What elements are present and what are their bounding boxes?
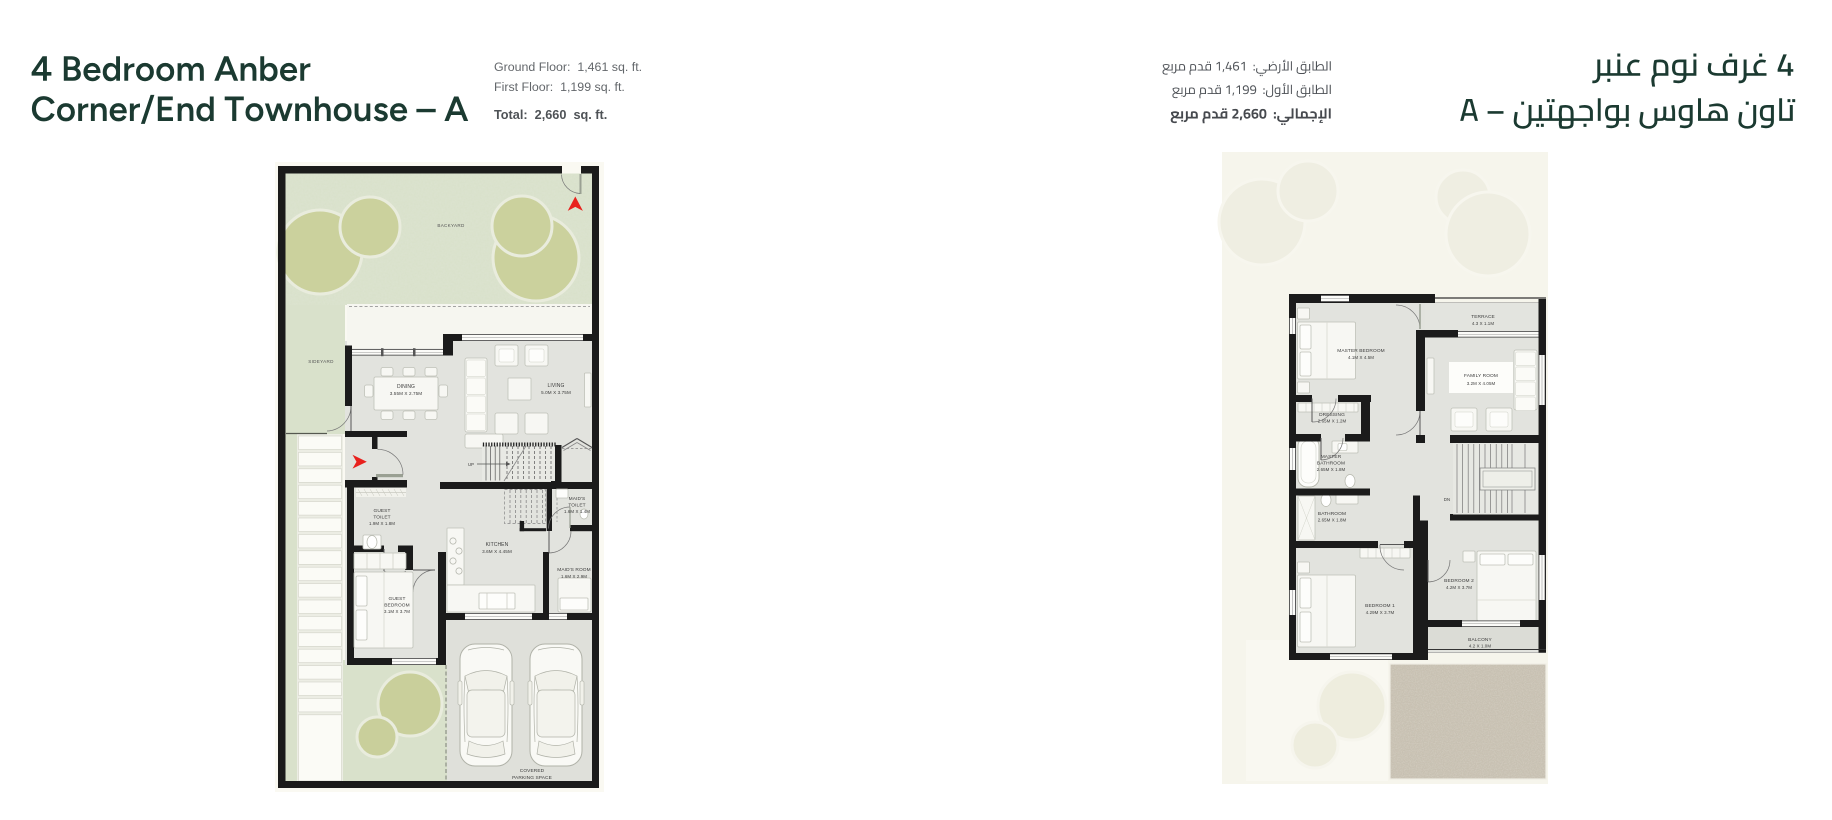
svg-text:1.6M X 1.4M: 1.6M X 1.4M [564,509,590,514]
svg-text:FAMILY ROOM: FAMILY ROOM [1464,373,1498,379]
svg-text:4.3 X 1.1M: 4.3 X 1.1M [1472,321,1494,326]
svg-text:TOILET: TOILET [373,515,390,521]
svg-text:BEDROOM 2: BEDROOM 2 [1444,578,1474,584]
svg-text:4.29M X 3.7M: 4.29M X 3.7M [1366,610,1395,615]
svg-text:2.65M X 1.8M: 2.65M X 1.8M [1317,467,1346,472]
svg-text:4.2M X 3.7M: 4.2M X 3.7M [1446,585,1472,590]
svg-text:Total: 2,660 sq. ft.: Total: 2,660 sq. ft. [494,108,607,122]
svg-text:MASTER: MASTER [1321,454,1342,460]
svg-text:Ground Floor: 1,461 sq. ft.: Ground Floor: 1,461 sq. ft. [494,60,642,74]
svg-text:UP: UP [468,462,474,467]
svg-text:4.2 X 1.0M: 4.2 X 1.0M [1469,644,1491,649]
svg-text:SIDEYARD: SIDEYARD [308,359,334,364]
svg-text:BATHROOM: BATHROOM [1318,511,1346,517]
svg-text:KITCHEN: KITCHEN [486,542,509,548]
svg-text:3.6M X 4.45M: 3.6M X 4.45M [482,549,512,554]
svg-text:5.0M X 3.75M: 5.0M X 3.75M [541,390,571,395]
svg-text:BATHROOM: BATHROOM [1317,461,1345,467]
svg-text:BEDROOM 1: BEDROOM 1 [1365,603,1395,609]
svg-text:DINING: DINING [397,384,415,390]
svg-text:COVERED: COVERED [520,768,545,774]
svg-text:DRESSING: DRESSING [1319,412,1345,418]
svg-text:2.65M X 1.8M: 2.65M X 1.8M [1318,518,1347,523]
svg-text:GUEST: GUEST [388,596,405,602]
svg-text:BACKYARD: BACKYARD [437,223,465,228]
svg-text:MASTER BEDROOM: MASTER BEDROOM [1337,348,1385,354]
svg-text:DN: DN [1444,497,1450,502]
svg-text:GUEST: GUEST [373,508,390,514]
svg-text:TOILET: TOILET [568,503,585,509]
svg-text:4.1M X 4.5M: 4.1M X 4.5M [1348,355,1374,360]
svg-text:PARKING SPACE: PARKING SPACE [512,775,552,781]
svg-text:LIVING: LIVING [548,383,565,389]
svg-text:First Floor: 1,199 sq. ft.: First Floor: 1,199 sq. ft. [494,80,625,94]
svg-text:1.9M X 1.8M: 1.9M X 1.8M [369,521,395,526]
svg-text:BALCONY: BALCONY [1468,637,1492,643]
svg-text:1.6M X 2.9M: 1.6M X 2.9M [561,574,587,579]
svg-text:BEDROOM: BEDROOM [384,603,410,609]
svg-text:3.1M X 3.7M: 3.1M X 3.7M [384,609,410,614]
svg-text:3.55M X 2.75M: 3.55M X 2.75M [390,391,423,396]
svg-text:TERRACE: TERRACE [1471,314,1495,320]
svg-text:2.65M X 1.2M: 2.65M X 1.2M [1318,419,1347,424]
svg-text:MAID'S: MAID'S [569,496,586,502]
svg-text:MAID'S ROOM: MAID'S ROOM [557,567,590,573]
svg-text:3.2M X 4.05M: 3.2M X 4.05M [1467,381,1496,386]
